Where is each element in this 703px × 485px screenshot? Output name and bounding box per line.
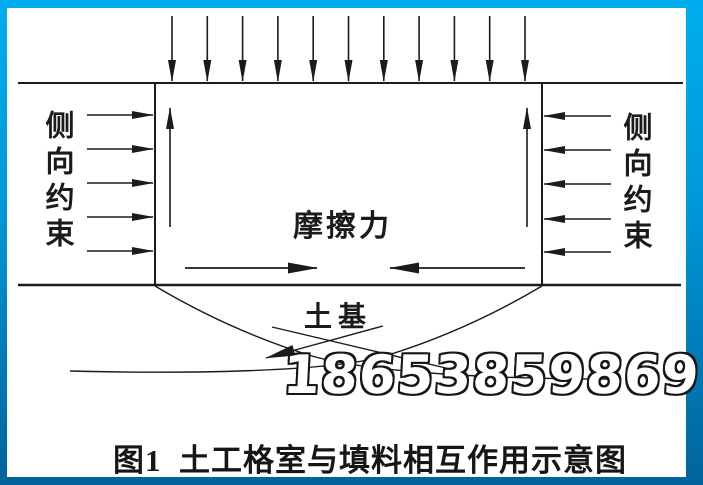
subgrade-label: 土基: [304, 295, 372, 335]
photo-frame: 侧向约束 侧向约束 摩擦力 土基 18653859869 图1 土工格室与填料相…: [0, 0, 703, 485]
left-confinement-label: 侧向约束: [42, 110, 71, 254]
friction-label: 摩擦力: [293, 201, 392, 245]
right-confinement-label: 侧向约束: [620, 112, 649, 256]
figure-caption: 图1 土工格室与填料相互作用示意图: [110, 435, 630, 480]
watermark-phone-number: 18653859869: [281, 345, 701, 406]
